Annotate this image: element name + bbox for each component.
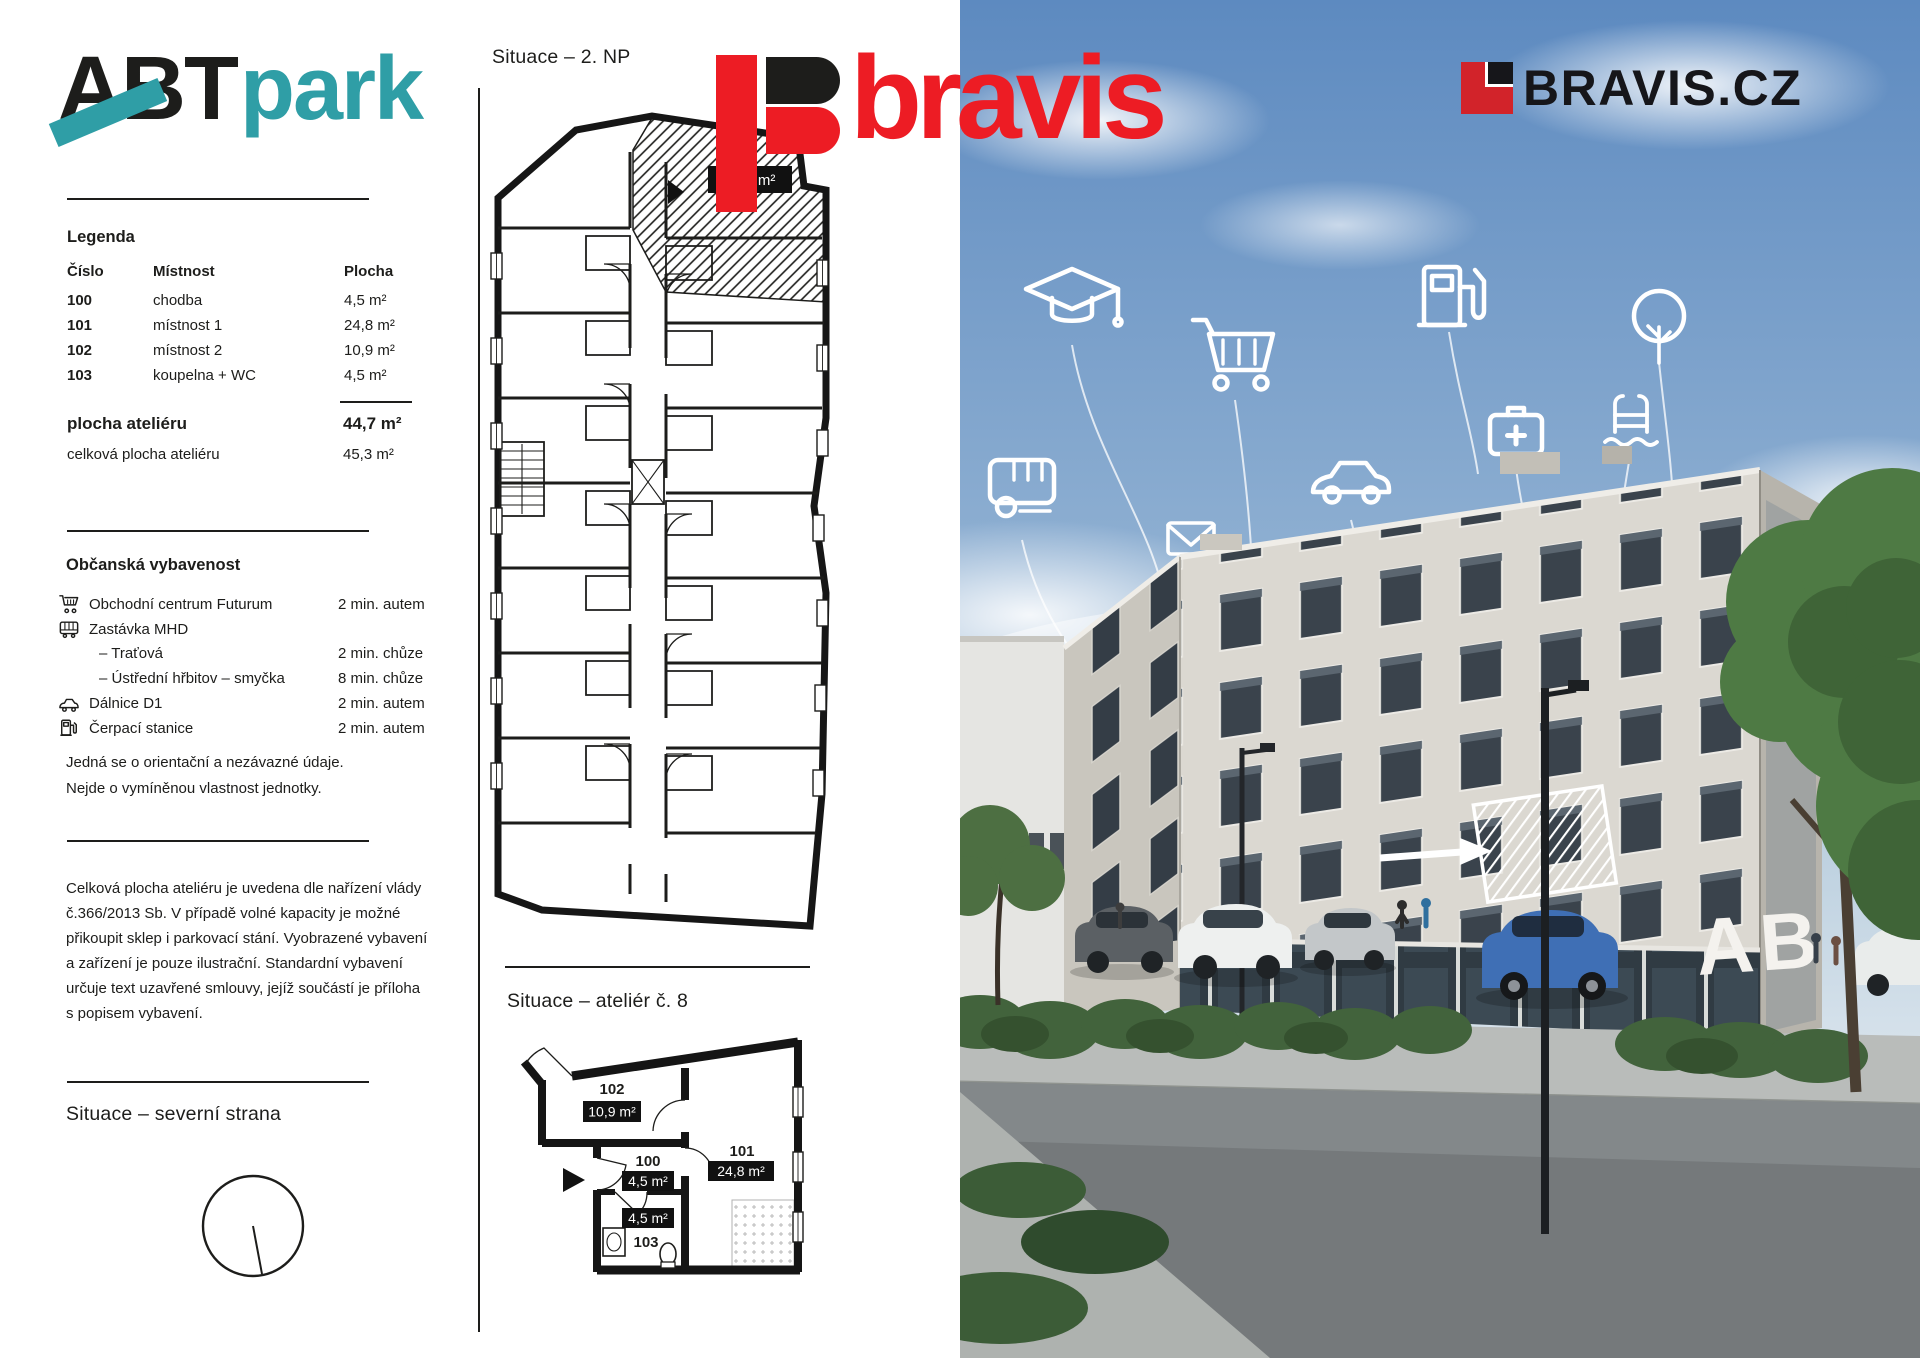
legend-col-room: Místnost (153, 259, 344, 288)
window-marks (491, 253, 828, 796)
legend-row-area: 24,8 m² (344, 313, 427, 338)
door-swings (604, 264, 692, 780)
amenity-row: Čerpací stanice 2 min. autem (58, 716, 448, 741)
elevator (632, 460, 664, 504)
legend-row-room: koupelna + WC (153, 363, 344, 388)
floor-plan-2np: 44,7 m² (480, 88, 860, 938)
divider (67, 840, 369, 842)
amenities-title: Občanská vybavenost (66, 556, 240, 575)
amenity-value: 2 min. chůze (338, 645, 423, 662)
abtpark-logo-park: park (240, 39, 422, 139)
disclaimer-line: č.366/2013 Sb. V případě volné kapacity … (66, 901, 427, 926)
amenity-label: – Traťová (58, 645, 163, 662)
amenity-row: Zastávka MHD (58, 617, 448, 642)
building-sign: AB (1693, 894, 1826, 992)
divider (67, 1081, 369, 1083)
legend-row-room: místnost 1 (153, 313, 344, 338)
divider (67, 530, 369, 532)
amenity-row: Dálnice D1 2 min. autem (58, 691, 448, 716)
amenity-label: Čerpací stanice (89, 720, 193, 737)
disclaimer-line: přikoupit sklep i parkovací stání. Vyobr… (66, 926, 427, 951)
car-icon (58, 694, 82, 714)
amenity-label: Zastávka MHD (89, 621, 188, 638)
legend-row-area: 10,9 m² (344, 338, 427, 363)
compass-needle (253, 1226, 262, 1274)
disclaimer-line: určuje text uzavřené smlouvy, jejíž souč… (66, 976, 427, 1001)
note-line: Nejde o vymíněnou vlastnost jednotky. (66, 776, 344, 802)
room-number: 100 (635, 1153, 660, 1170)
legend-row-room: místnost 2 (153, 338, 344, 363)
render-scene: AB (960, 0, 1920, 1358)
room-area: 10,9 m² (588, 1104, 636, 1120)
summary-divider (340, 401, 412, 403)
legend-row-area: 4,5 m² (344, 363, 427, 388)
window-marks (793, 1087, 803, 1242)
legend-row-num: 101 (67, 313, 153, 338)
amenity-value: 2 min. autem (338, 596, 425, 613)
legend-col-area: Plocha (344, 259, 427, 288)
fuel-pump-icon (58, 718, 82, 738)
disclaimer-line: a zařízení je pouze ilustrační. Standard… (66, 951, 427, 976)
amenity-row: – Ústřední hřbitov – smyčka 8 min. chůze (58, 666, 448, 691)
braviscz-logo-black-square (1488, 62, 1513, 84)
orientation-note: Jedná se o orientační a nezávazné údaje.… (66, 750, 344, 801)
bathroom-cores (586, 236, 712, 790)
legend-row-num: 103 (67, 363, 153, 388)
legend-title: Legenda (67, 228, 427, 247)
legend-row-area: 4,5 m² (344, 288, 427, 313)
legend-col-num: Číslo (67, 259, 153, 288)
disclaimer-line: Celková plocha ateliéru je uvedena dle n… (66, 876, 427, 901)
divider (67, 198, 369, 200)
shopping-cart-icon (58, 594, 82, 614)
bravis-logo-bar (716, 55, 757, 212)
amenity-row: – Traťová 2 min. chůze (58, 642, 448, 667)
room-number: 102 (599, 1081, 624, 1098)
room-area: 4,5 m² (628, 1210, 668, 1226)
gross-area-label: celková plocha ateliéru (67, 446, 220, 463)
amenity-label: – Ústřední hřbitov – smyčka (58, 670, 285, 687)
unit-plan-heading: Situace – ateliér č. 8 (507, 990, 688, 1013)
legend-row-num: 102 (67, 338, 153, 363)
legend-row-room: chodba (153, 288, 344, 313)
unit-entrance-arrow (563, 1168, 585, 1192)
bravis-logo-top-bowl (766, 57, 840, 104)
amenities-list: Obchodní centrum Futurum 2 min. autem Za… (58, 592, 448, 741)
unit-divider-walls (498, 228, 824, 833)
compass (193, 1166, 313, 1286)
bravis-logo-wordmark: bravis (850, 48, 1162, 148)
kitchen-area (732, 1200, 794, 1266)
disclaimer-line: s popisem vybavení. (66, 1001, 427, 1026)
room-area: 4,5 m² (628, 1173, 668, 1189)
total-area-value: 44,7 m² (343, 414, 402, 434)
note-line: Jedná se o orientační a nezávazné údaje. (66, 750, 344, 776)
room-number: 103 (633, 1234, 658, 1251)
abtpark-logo: ABTpark (58, 44, 422, 134)
legend-row-num: 100 (67, 288, 153, 313)
floor-plan-heading: Situace – 2. NP (492, 46, 631, 69)
amenity-value: 2 min. autem (338, 720, 425, 737)
divider (505, 966, 810, 968)
brochure-page: ABTpark Legenda Číslo Místnost Plocha 10… (0, 0, 1920, 1358)
braviscz-logo-wordmark: BRAVIS.CZ (1523, 58, 1802, 118)
staircase (500, 442, 544, 516)
gross-area-value: 45,3 m² (343, 446, 394, 463)
amenity-label: Dálnice D1 (89, 695, 162, 712)
amenity-value: 8 min. chůze (338, 670, 423, 687)
amenity-label: Obchodní centrum Futurum (89, 596, 272, 613)
amenity-row: Obchodní centrum Futurum 2 min. autem (58, 592, 448, 617)
unit-plan-atelier-8: 102 10,9 m² 100 4,5 m² 101 24,8 m² 4,5 m… (480, 1032, 810, 1332)
legend-table: Legenda Číslo Místnost Plocha 100 chodba… (67, 228, 427, 388)
amenity-value: 2 min. autem (338, 695, 425, 712)
room-number: 101 (729, 1143, 754, 1160)
room-area: 24,8 m² (717, 1163, 765, 1179)
bus-icon (58, 619, 82, 639)
building-render-photo: AB (960, 0, 1920, 1358)
disclaimer-paragraph: Celková plocha ateliéru je uvedena dle n… (66, 876, 427, 1026)
bravis-logo-bottom-bowl (766, 107, 840, 154)
total-area-label: plocha ateliéru (67, 414, 187, 434)
north-side-heading: Situace – severní strana (66, 1103, 281, 1126)
